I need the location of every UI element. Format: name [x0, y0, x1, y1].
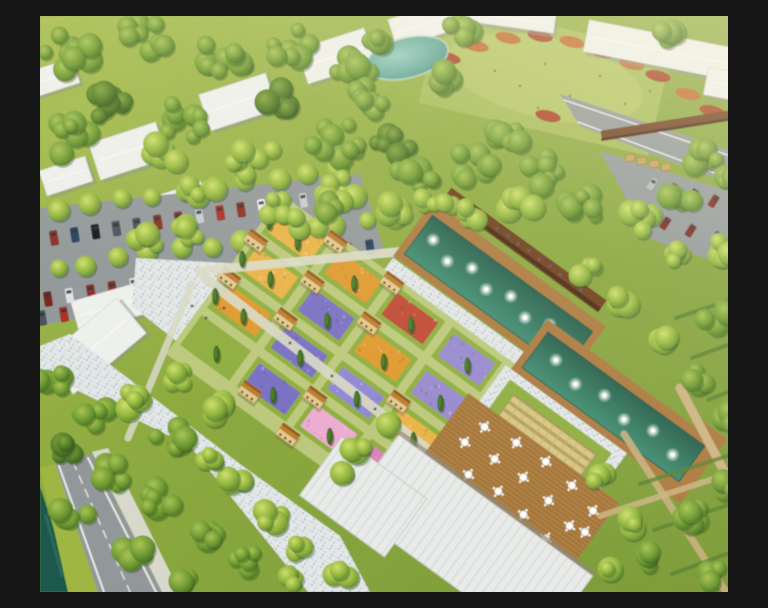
scene-canvas [40, 16, 728, 592]
sunlight-haze-overlay [40, 16, 728, 592]
park-aerial-rendering [40, 16, 728, 592]
